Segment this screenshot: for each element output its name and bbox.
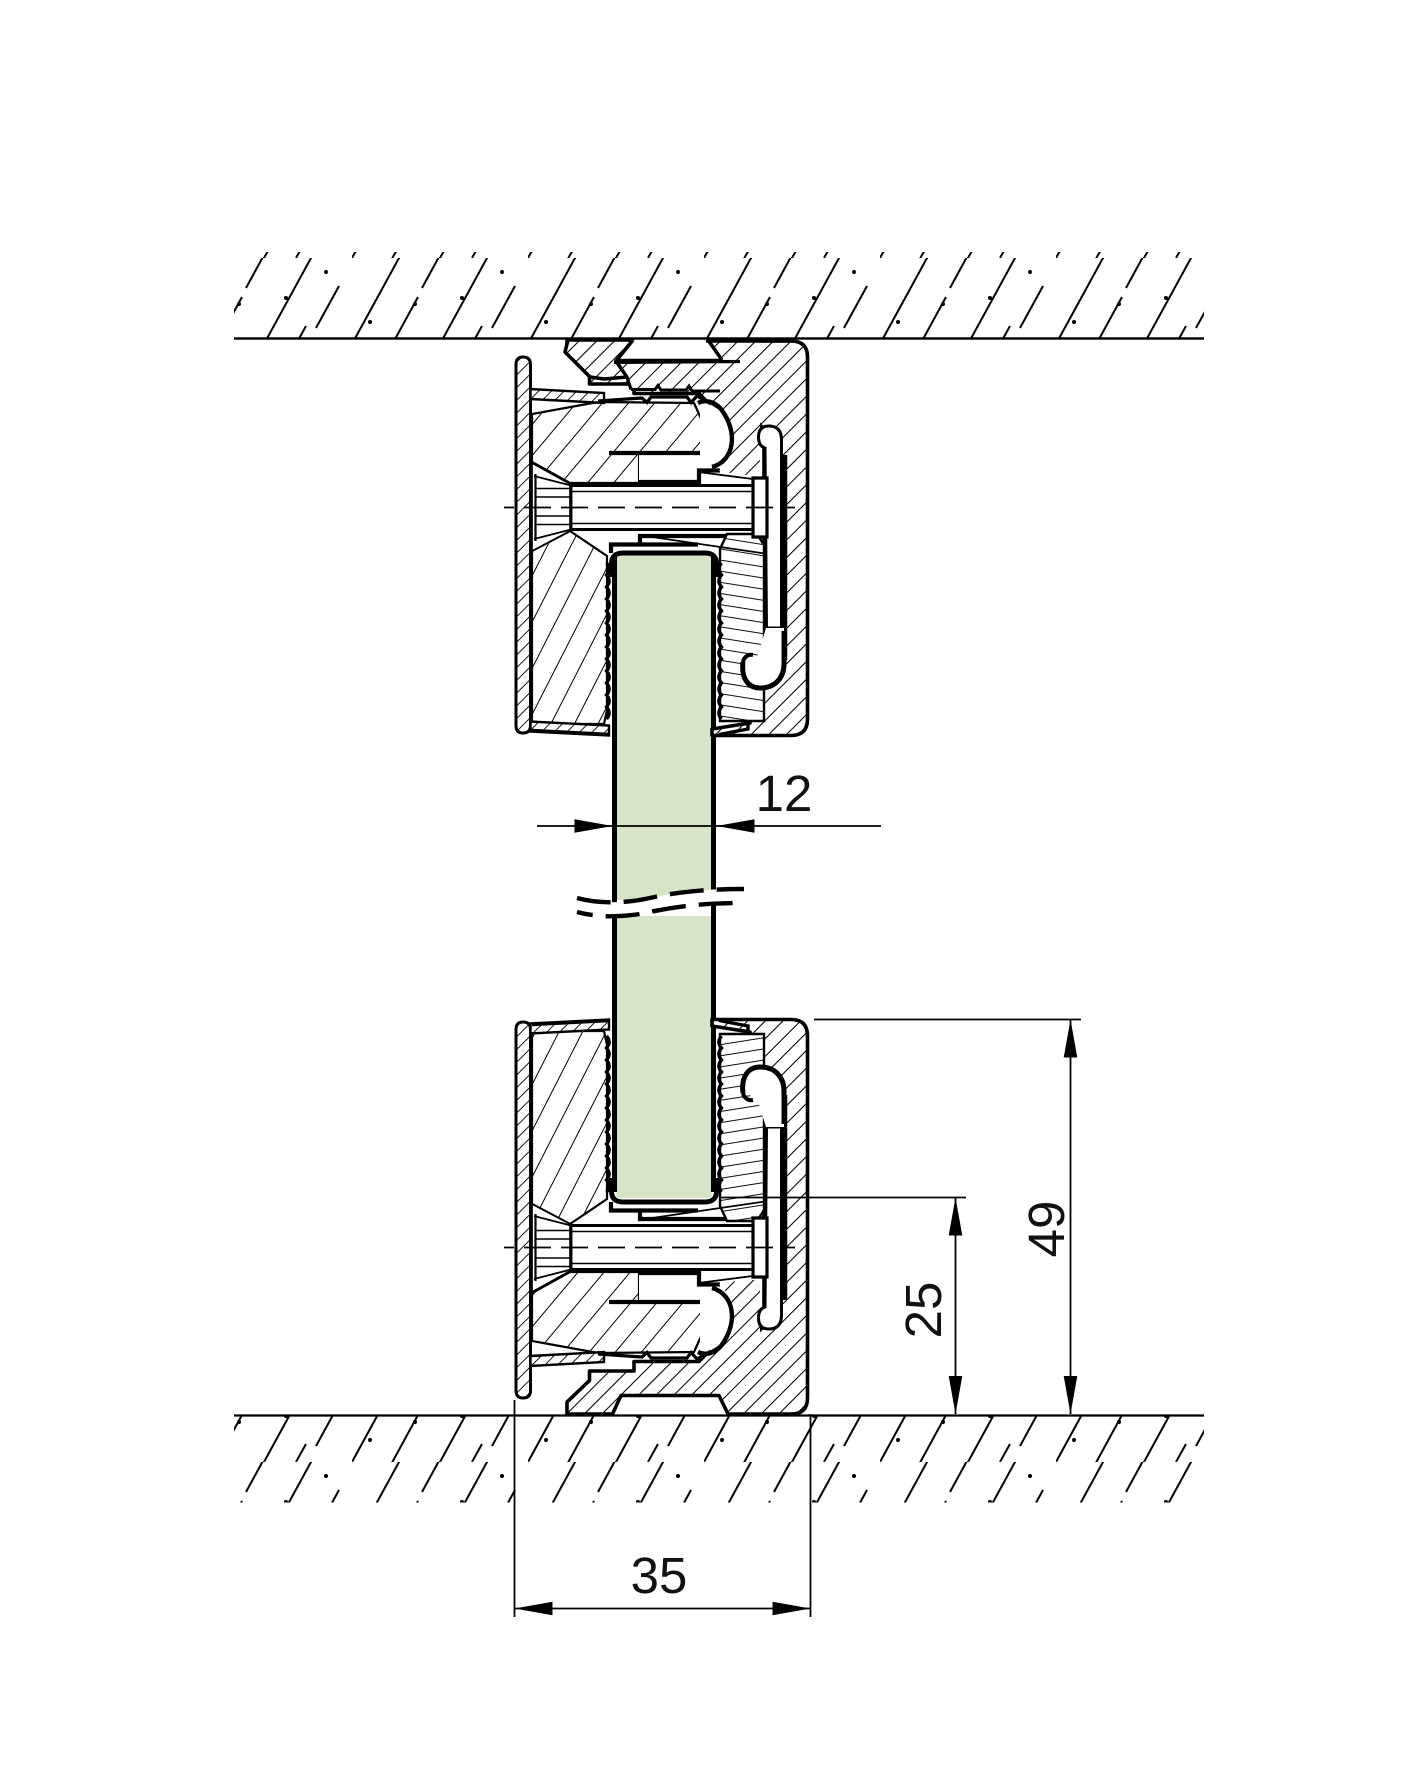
svg-text:12: 12 <box>756 765 813 822</box>
svg-text:49: 49 <box>1018 1201 1075 1258</box>
svg-text:35: 35 <box>631 1547 688 1604</box>
svg-text:25: 25 <box>895 1282 952 1339</box>
